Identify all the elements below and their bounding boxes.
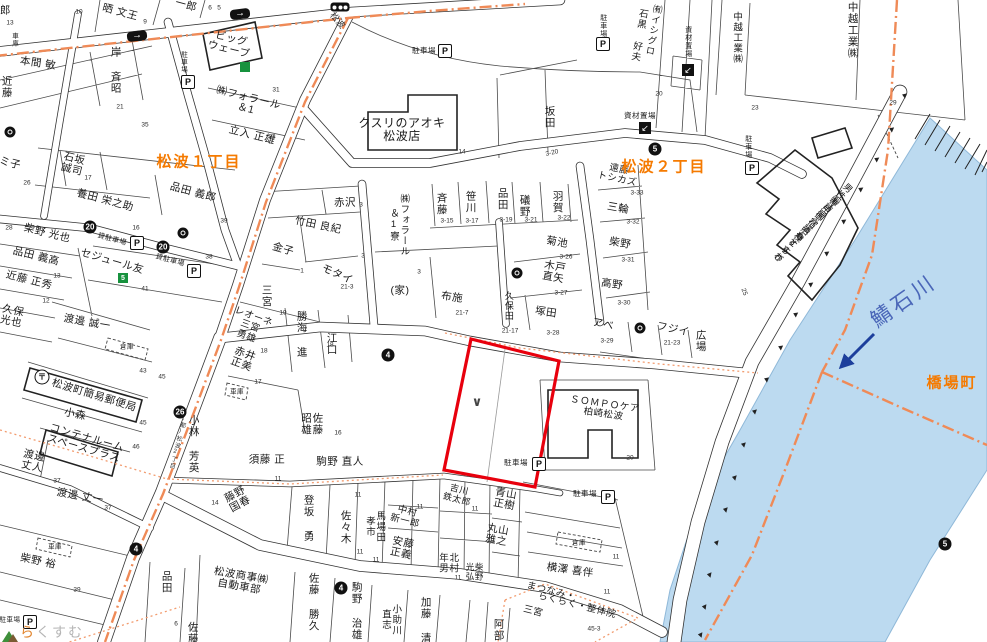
parcel-number: 29 (889, 100, 896, 107)
parcel-number: 37 (53, 478, 60, 485)
parcel-number: 11 (472, 506, 479, 513)
map-label: 勝海 進 (295, 310, 306, 358)
parcel-number: 39 (220, 218, 227, 225)
map-label: 駐車場 (599, 14, 607, 38)
map-label: セジュール友 (79, 248, 145, 277)
parcel-number: 11 (455, 575, 462, 582)
parcel-number: 11 (357, 549, 364, 556)
map-label: 倉庫 (120, 343, 134, 350)
map-label: ＳＯＭＰＯケア 柏崎松波 (568, 395, 640, 425)
map-label: 駐車場 (412, 47, 436, 55)
map-label: 菊池 (545, 236, 569, 251)
map-label: 品田 義高 (12, 246, 61, 268)
district-label: 松波２丁目 (621, 156, 706, 177)
parcel-number: 3-15 (440, 218, 453, 225)
parcel-number: 39 (73, 587, 80, 594)
parcel-number: 28 (5, 225, 12, 232)
map-label: 北村 年男 (437, 553, 458, 574)
parcel-number: 18 (326, 342, 333, 349)
parcel-number: 25 (739, 287, 748, 296)
map-label: 車庫 (48, 543, 62, 550)
parking-icon: P (130, 236, 144, 250)
map-label: やすらぎ (770, 228, 805, 263)
road-name-label: 松波 (327, 9, 349, 31)
map-label: 横澤 喜伴 (546, 562, 595, 580)
map-label: 品田 義郎 (169, 181, 218, 204)
map-label: 近藤 正秀 (5, 270, 54, 292)
map-label: 久保田 (503, 291, 513, 321)
parcel-number: 19 (279, 310, 286, 317)
map-label: 晒 文王 (101, 3, 139, 23)
map-label: 久保 光也 (0, 304, 25, 331)
map-label: 礒野 (518, 195, 529, 218)
watermark-text: らくすむ (20, 622, 84, 642)
map-label: ㈱フォラール ＆1 (212, 85, 282, 123)
parking-icon: P (181, 75, 195, 89)
map-label: 石坂 誠司 (60, 151, 87, 178)
map-label: 須藤 正 (249, 454, 285, 465)
parcel-number: 3-33 (630, 190, 643, 197)
map-label: 登坂 勇 (302, 494, 313, 542)
parcel-number: 46 (132, 444, 139, 451)
map-label: 渡邊 丈一 (56, 487, 105, 506)
parcel-number: 11 (275, 476, 282, 483)
road-number-badge: 20 (157, 241, 170, 254)
oneway-arrow-icon: → (126, 30, 147, 42)
map-label: 赤沢 (334, 197, 356, 208)
parcel-number: 3-28 (546, 330, 559, 337)
map-label: 渡邊 丈人 (20, 449, 46, 476)
parcel-number: 3-21 (524, 217, 537, 224)
map-label: 中越工業㈱ (846, 1, 857, 59)
company-mark-icon (178, 228, 189, 239)
parcel-check-mark: ∨ (472, 394, 483, 410)
parcel-number: 3-27 (554, 290, 567, 297)
material-storage-icon: ↙ (639, 122, 651, 134)
parcel-number: 20 (626, 455, 633, 462)
parcel-number: 3-22 (557, 215, 570, 222)
map-label: 貸駐車場 (155, 253, 186, 268)
map-label: 柴野 光弘 (465, 563, 483, 582)
parcel-number: 45 (158, 374, 165, 381)
map-label: 駐車場 (744, 135, 752, 159)
company-mark-icon (512, 268, 523, 279)
post-office-icon: 〒 (35, 370, 50, 385)
map-label: 阿部 (492, 619, 503, 642)
map-label: 広場 (694, 330, 705, 353)
parcel-number: 3 (359, 202, 363, 209)
parcel-number: 26 (23, 180, 30, 187)
parcel-number: 11 (604, 589, 611, 596)
map-label: 笹川 (464, 191, 475, 214)
map-label: 一郎 (174, 0, 198, 14)
parcel-number: 23 (751, 105, 758, 112)
map-label: 佐々木 (339, 510, 350, 545)
parking-icon: P (596, 37, 610, 51)
road-number-badge: 5 (939, 538, 952, 551)
parcel-number: 10 (75, 9, 82, 16)
parcel-number: 16 (334, 430, 341, 437)
parcel-number: 13 (53, 273, 60, 280)
map-label: 車庫 (10, 33, 17, 48)
map-label: 車庫 (230, 388, 244, 395)
map-label: らくらく・整体院 (537, 591, 617, 620)
map-label: 品田 (496, 188, 507, 211)
map-label: 近藤 (0, 76, 11, 99)
parcel-number: 17 (254, 379, 261, 386)
map-label: フジイ (656, 321, 691, 339)
parcel-number: 13 (6, 20, 13, 27)
map-label: 三宮 (522, 605, 544, 620)
map-label: 安藤 正義 (389, 536, 415, 563)
map-label: 駒野 直人 (316, 456, 363, 467)
parcel-number: 17 (84, 175, 91, 182)
parcel-number: 3-17 (465, 218, 478, 225)
parcel-number: 16 (132, 225, 139, 232)
road-number-badge: 20 (84, 221, 97, 234)
map-label: 小林 芳英 (187, 415, 198, 474)
parcel-number: 11 (417, 504, 424, 511)
road-number-badge: 5 (649, 143, 662, 156)
labels-layer: 郎晒 文王一郎本間 敏岸 斉昭近藤車庫ビッグ ウェーブ㈱フォラール ＆1立入 正… (0, 0, 987, 642)
map-label: 藤野 国春 (223, 485, 253, 515)
map-label: 品田 (160, 571, 171, 594)
parcel-number: 20 (655, 91, 662, 98)
district-label: 橋場町 (926, 372, 977, 393)
parcel-number: 21 (116, 104, 123, 111)
traffic-signal-icon (331, 3, 350, 12)
material-storage-icon: ↙ (682, 64, 694, 76)
map-label: 柴野 (608, 237, 632, 252)
map-label: ミ子 (0, 156, 22, 172)
map-label: コンテナルーム スペースプラス (45, 423, 125, 466)
parcel-number: 38 (205, 254, 212, 261)
map-label: 小森 (63, 407, 87, 423)
parcel-number: 3-19 (499, 217, 512, 224)
parcel-number: 3 (417, 269, 421, 276)
logo-triangle-icon (8, 634, 18, 642)
map-label: ㈱フォラール ＆1寮 (388, 194, 409, 257)
company-mark-icon (5, 127, 16, 138)
map-label: クスリのアオキ 松波店 (358, 117, 445, 143)
map-label: 金子 (271, 242, 295, 259)
map-label: 三宮 (260, 285, 271, 308)
map-label: 郎 (0, 4, 10, 16)
map-label: 駐車場 (573, 490, 597, 498)
map-label: 養田 栄之助 (75, 188, 134, 214)
parcel-number: 5 (217, 5, 221, 12)
parking-icon: P (601, 490, 615, 504)
map-label: レオーネ 三宮 勇雄 (226, 306, 274, 349)
map-label: 駐車場 (504, 459, 528, 467)
company-mark-icon (635, 323, 646, 334)
map-label: 中越工業㈱ (731, 12, 741, 65)
parcel-number: 1 (300, 268, 304, 275)
map-label: 羽賀 (551, 191, 562, 214)
map-label: 佐藤 (186, 622, 197, 642)
road-number-badge: 4 (130, 543, 143, 556)
parcel-number: 33 (268, 134, 275, 141)
parcel-number: 21-3 (340, 284, 353, 291)
map-label: 加藤 清 (419, 596, 430, 642)
road-number-badge: 26 (174, 406, 187, 419)
parking-icon: P (745, 161, 759, 175)
map-label: 柴野 裕 (19, 553, 57, 572)
parcel-number: 21-7 (455, 310, 468, 317)
road-number-badge: 4 (382, 349, 395, 362)
parcel-number: 11 (373, 557, 380, 564)
parcel-number: 37 (104, 505, 111, 512)
map-label: 柴野 光也 (23, 223, 72, 245)
map-label: 岸 斉昭 (109, 46, 120, 94)
map-label: 吉川 鉄太郎 (442, 482, 474, 508)
map-label: ビッグ ウェーブ (206, 29, 254, 61)
map-label: 三輪 (606, 202, 630, 217)
map-label: 資材置場 (624, 112, 656, 120)
parcel-number: 45 (139, 420, 146, 427)
road-name-label: (都)松波2丁目 (167, 414, 187, 470)
map-label: 塚田 (534, 306, 557, 320)
map-label: 松波商事㈱ 自動車部 (211, 566, 269, 598)
oneway-arrow-icon: → (229, 8, 250, 20)
parcel-number: 21-23 (664, 340, 681, 347)
map-label: 本間 敏 (19, 56, 57, 72)
parcel-number: 45-3 (587, 626, 600, 633)
rakusumu-logo: らくすむ (2, 622, 84, 642)
parking-icon: P (532, 457, 546, 471)
parcel-number: 3-32 (626, 219, 639, 226)
parcel-number: 14 (458, 149, 465, 156)
map-label: 駐車場 (179, 51, 186, 74)
parcel-number: 18 (260, 348, 267, 355)
map-label: アベ (591, 317, 615, 333)
map-canvas[interactable]: 郎晒 文王一郎本間 敏岸 斉昭近藤車庫ビッグ ウェーブ㈱フォラール ＆1立入 正… (0, 0, 987, 642)
map-label: 布施 (440, 291, 463, 305)
green-sign-icon: 5 (118, 273, 128, 283)
map-label: 木戸 直矢 (541, 260, 567, 286)
parking-icon: P (438, 44, 452, 58)
parcel-number: 14 (211, 500, 218, 507)
parcel-number: 31 (272, 87, 279, 94)
parking-icon: P (187, 264, 201, 278)
map-label: 渡邊 誠一 (63, 313, 112, 332)
green-sign-icon (240, 62, 250, 72)
map-label: 貸駐車場 (97, 232, 128, 247)
map-label: 佐藤 勝久 (307, 573, 318, 632)
parcel-number: 41 (141, 286, 148, 293)
map-label: 坂田 (543, 106, 554, 129)
district-label: 松波１丁目 (156, 151, 241, 172)
parcel-number: 3-30 (617, 300, 630, 307)
map-label: 駒野 治雄 (350, 582, 361, 641)
map-label: 倉庫 (572, 539, 586, 546)
parcel-number: 9 (143, 19, 147, 26)
parcel-number: 6 (208, 5, 212, 12)
map-label: 小助川 直志 (380, 604, 401, 636)
parcel-number: 3-26 (559, 254, 572, 261)
map-label: 馬場田 孝市 (364, 511, 385, 543)
parcel-number: 12 (42, 298, 49, 305)
parcel-number: 3-29 (600, 338, 613, 345)
map-label: 斉藤 (435, 193, 446, 216)
parcel-number: 11 (355, 492, 362, 499)
map-label: 佐藤 昭雄 (300, 413, 323, 436)
parcel-number: 35 (141, 122, 148, 129)
map-label: 赤井 正美 (229, 346, 257, 375)
map-label: 丸山 雅之 (484, 523, 510, 549)
parcel-number: 3-20 (545, 148, 559, 158)
parcel-number: 6 (174, 621, 178, 628)
map-label: 資材置場 (684, 26, 692, 58)
map-label: 青山 正樹 (492, 487, 518, 513)
map-label: 高野 (600, 278, 623, 292)
river-name-label: 鯖石川 (864, 266, 943, 334)
map-label: 竹田 良紀 (294, 216, 343, 237)
parcel-number: 21-17 (502, 328, 519, 335)
parcel-number: 11 (613, 554, 620, 561)
map-label: 松波町簡易郵便局 (50, 378, 137, 415)
map-label: (家) (391, 285, 410, 296)
road-number-badge: 4 (335, 582, 348, 595)
parcel-number: 3-31 (621, 257, 634, 264)
parcel-number: 43 (139, 368, 146, 375)
parcel-number: 3 (361, 253, 365, 260)
